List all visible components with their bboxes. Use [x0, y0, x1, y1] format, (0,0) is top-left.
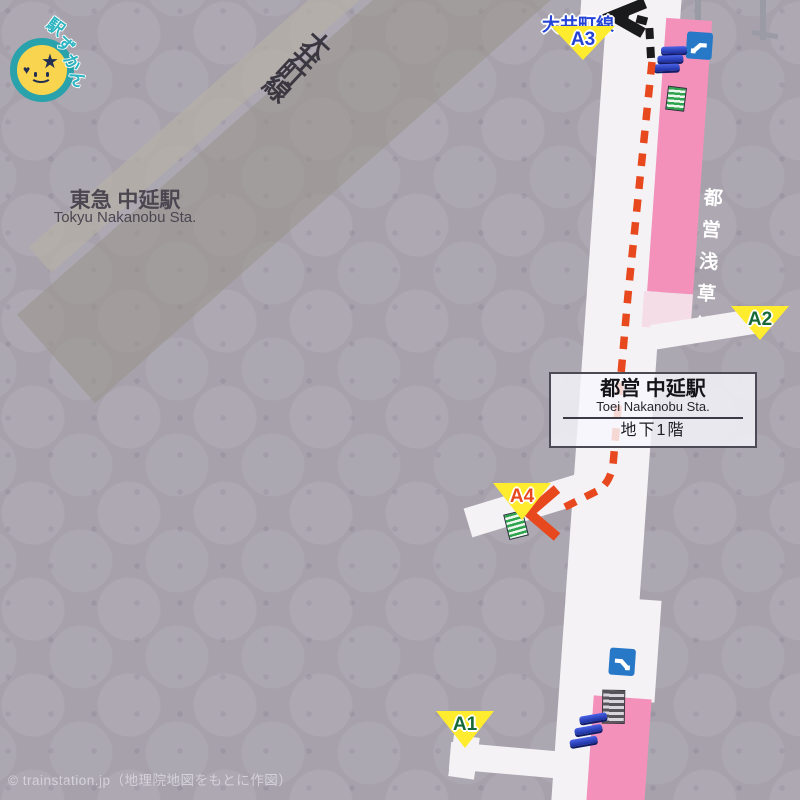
stairs-icon [654, 64, 680, 72]
stairs-icon [661, 46, 687, 54]
toei-station-name-en: Toei Nakanobu Sta. [551, 400, 755, 415]
station-map-canvas: 大井町線 都営浅草線 [0, 0, 800, 800]
escalator-icon-green [665, 86, 687, 112]
escalator-icon [608, 647, 636, 676]
smile-icon [30, 69, 52, 83]
exit-label-a3: A3 [551, 26, 615, 49]
exit-label-a1: A1 [436, 711, 494, 734]
stairs-icon [657, 55, 683, 63]
exit-label-a2: A2 [731, 306, 789, 329]
exit-label-a4: A4 [493, 483, 551, 506]
escalator-icon [685, 31, 713, 60]
floor-label: 地下1階 [551, 421, 755, 440]
divider [563, 417, 743, 419]
toei-station-name: 都営 中延駅 [551, 378, 755, 400]
station-info-box: 都営 中延駅 Toei Nakanobu Sta. 地下1階 [549, 372, 757, 448]
exit-marker-a1[interactable]: A1 [436, 711, 494, 748]
tokyu-station-name-en: Tokyu Nakanobu Sta. [35, 209, 215, 226]
exit-marker-a3[interactable]: A3 [551, 26, 615, 60]
copyright-text: © trainstation.jp（地理院地図をもとに作図） [8, 769, 292, 789]
exit-marker-a2[interactable]: A2 [731, 306, 789, 340]
exit-marker-a4[interactable]: A4 [493, 483, 551, 520]
